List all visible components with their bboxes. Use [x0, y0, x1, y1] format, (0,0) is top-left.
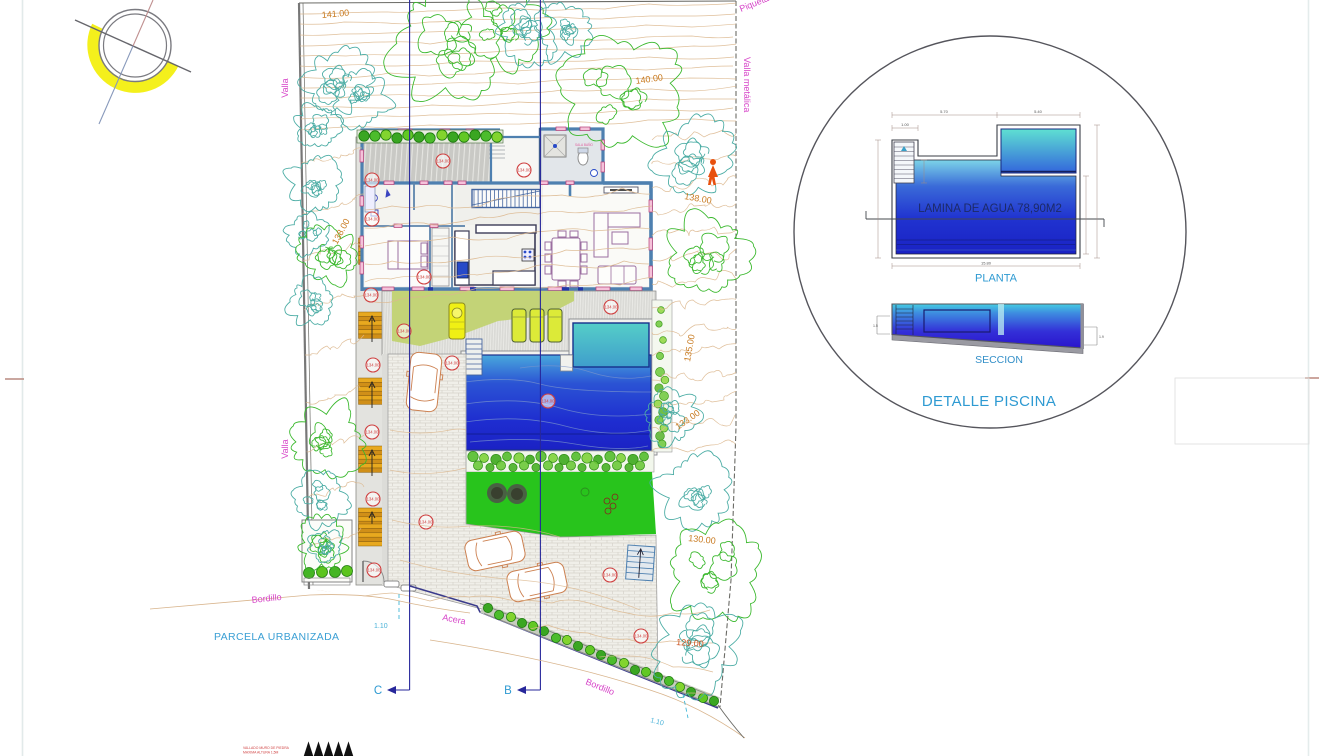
svg-text:C: C	[374, 685, 382, 697]
svg-text:VALLADO MURO DE PIEDRA: VALLADO MURO DE PIEDRA	[243, 746, 290, 750]
svg-text:134.00: 134.00	[420, 520, 433, 525]
svg-text:PARCELA URBANIZADA: PARCELA URBANIZADA	[214, 631, 339, 643]
svg-text:MAXIMA ALTURA 1,5M: MAXIMA ALTURA 1,5M	[243, 751, 279, 755]
svg-text:PLANTA: PLANTA	[975, 273, 1018, 285]
svg-text:SALA BAÑO: SALA BAÑO	[575, 142, 593, 147]
svg-text:Valla: Valla	[280, 78, 290, 97]
svg-text:Valla: Valla	[280, 439, 290, 458]
svg-text:Valla metálica: Valla metálica	[742, 57, 752, 112]
svg-text:1.10: 1.10	[374, 623, 388, 630]
svg-text:134.00: 134.00	[366, 178, 379, 183]
svg-text:134.00: 134.00	[367, 497, 380, 502]
svg-text:134.00: 134.00	[418, 275, 431, 280]
svg-text:134.00: 134.00	[437, 159, 450, 164]
svg-text:15.80: 15.80	[981, 261, 992, 266]
svg-text:134.00: 134.00	[635, 634, 648, 639]
svg-text:134.00: 134.00	[604, 573, 617, 578]
svg-text:LAMINA DE AGUA 78,90M2: LAMINA DE AGUA 78,90M2	[918, 203, 1062, 215]
svg-text:5.70: 5.70	[940, 109, 949, 114]
svg-text:1.00: 1.00	[901, 122, 910, 127]
svg-text:134.00: 134.00	[518, 168, 531, 173]
svg-text:134.00: 134.00	[366, 430, 379, 435]
svg-text:129.00: 129.00	[676, 637, 704, 649]
svg-text:134.00: 134.00	[542, 399, 555, 404]
svg-text:134.00: 134.00	[366, 217, 379, 222]
svg-text:1.5: 1.5	[873, 324, 878, 328]
svg-text:B: B	[504, 685, 512, 697]
svg-text:5.40: 5.40	[1034, 109, 1043, 114]
svg-text:SECCION: SECCION	[975, 354, 1023, 366]
svg-text:1.9: 1.9	[1099, 335, 1104, 339]
svg-text:134.00: 134.00	[368, 568, 381, 573]
svg-text:DETALLE PISCINA: DETALLE PISCINA	[922, 393, 1056, 410]
svg-text:134.00: 134.00	[446, 361, 459, 366]
svg-text:134.00: 134.00	[605, 305, 618, 310]
svg-text:134.00: 134.00	[365, 293, 378, 298]
svg-text:134.00: 134.00	[367, 363, 380, 368]
